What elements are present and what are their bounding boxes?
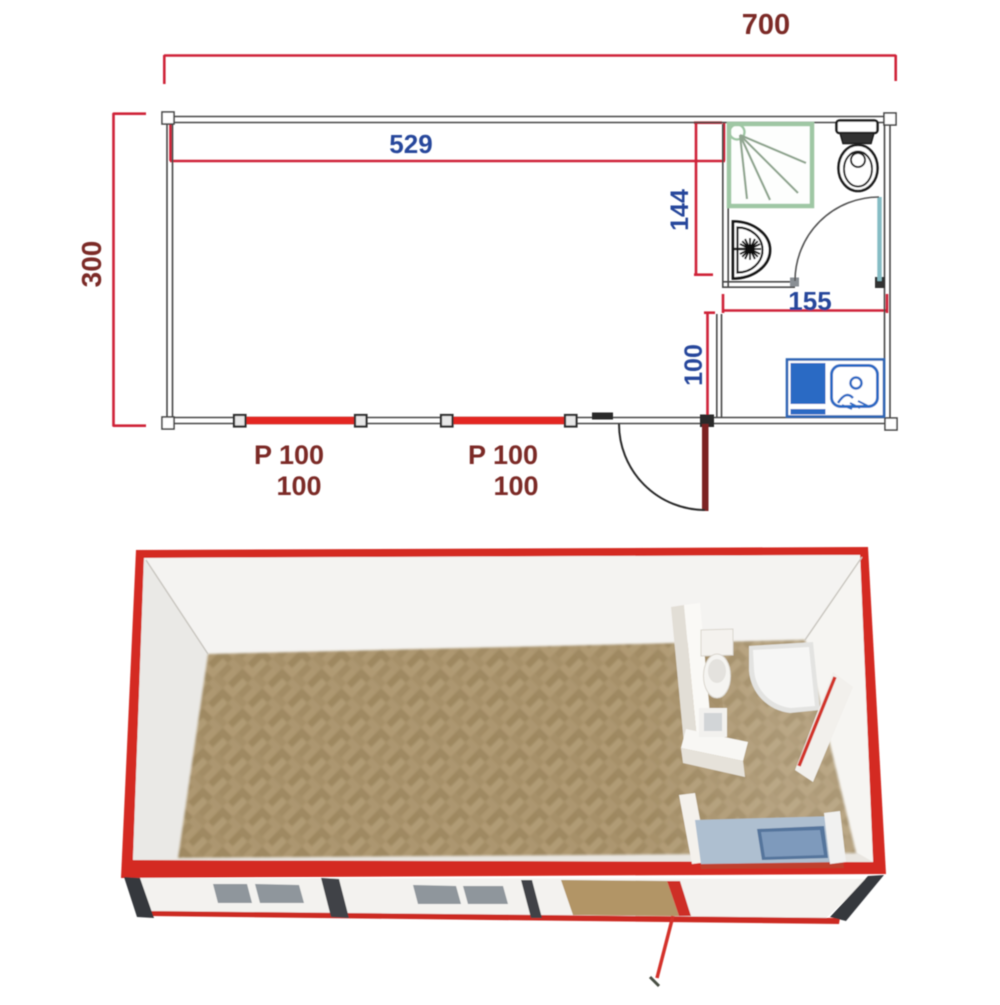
svg-text:144: 144 [666, 189, 694, 231]
svg-text:529: 529 [389, 129, 432, 159]
svg-text:100: 100 [276, 471, 321, 501]
svg-text:100: 100 [680, 344, 708, 386]
svg-text:155: 155 [788, 286, 831, 316]
svg-text:100: 100 [493, 471, 538, 501]
svg-text:P 100: P 100 [468, 440, 538, 470]
svg-text:300: 300 [76, 241, 107, 288]
svg-text:P 100: P 100 [254, 440, 324, 470]
svg-text:700: 700 [742, 9, 790, 41]
